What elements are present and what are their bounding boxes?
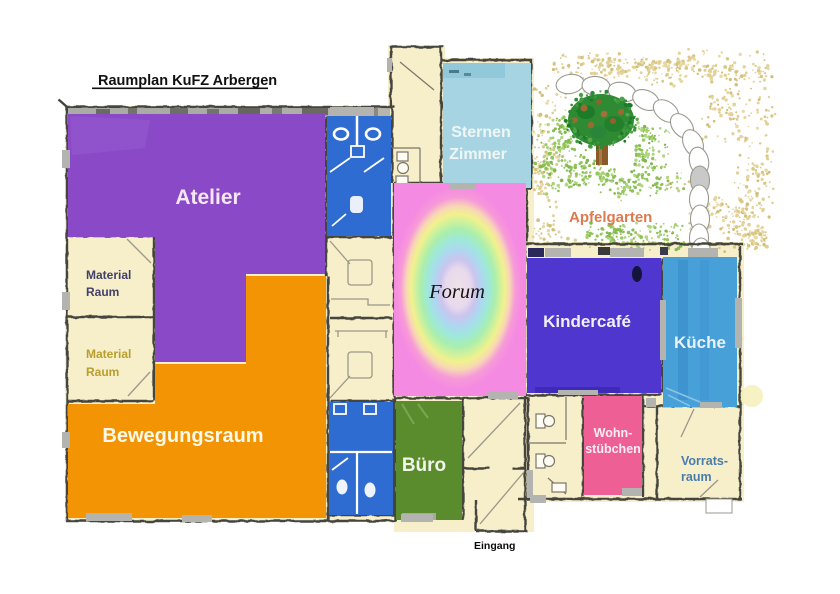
svg-text:Bewegungsraum: Bewegungsraum [102, 425, 263, 447]
svg-text:Eingang: Eingang [474, 540, 515, 552]
svg-text:Raum: Raum [86, 365, 119, 379]
svg-text:Apfelgarten: Apfelgarten [569, 209, 652, 226]
svg-text:Küche: Küche [674, 333, 726, 352]
svg-text:raum: raum [681, 470, 712, 484]
svg-text:Material: Material [86, 347, 131, 361]
svg-text:Vorrats-: Vorrats- [681, 454, 728, 468]
svg-text:Zimmer: Zimmer [449, 146, 507, 163]
svg-text:Material: Material [86, 268, 131, 282]
svg-text:Wohn-: Wohn- [594, 426, 633, 440]
svg-text:Raumplan KuFZ Arbergen: Raumplan KuFZ Arbergen [98, 73, 277, 89]
svg-text:Forum: Forum [428, 281, 485, 303]
svg-text:Kindercafé: Kindercafé [543, 312, 631, 331]
svg-text:Raum: Raum [86, 285, 119, 299]
svg-text:Sternen: Sternen [451, 124, 511, 141]
svg-text:Atelier: Atelier [175, 186, 240, 209]
svg-text:Büro: Büro [402, 455, 446, 476]
svg-text:stübchen: stübchen [585, 442, 641, 456]
